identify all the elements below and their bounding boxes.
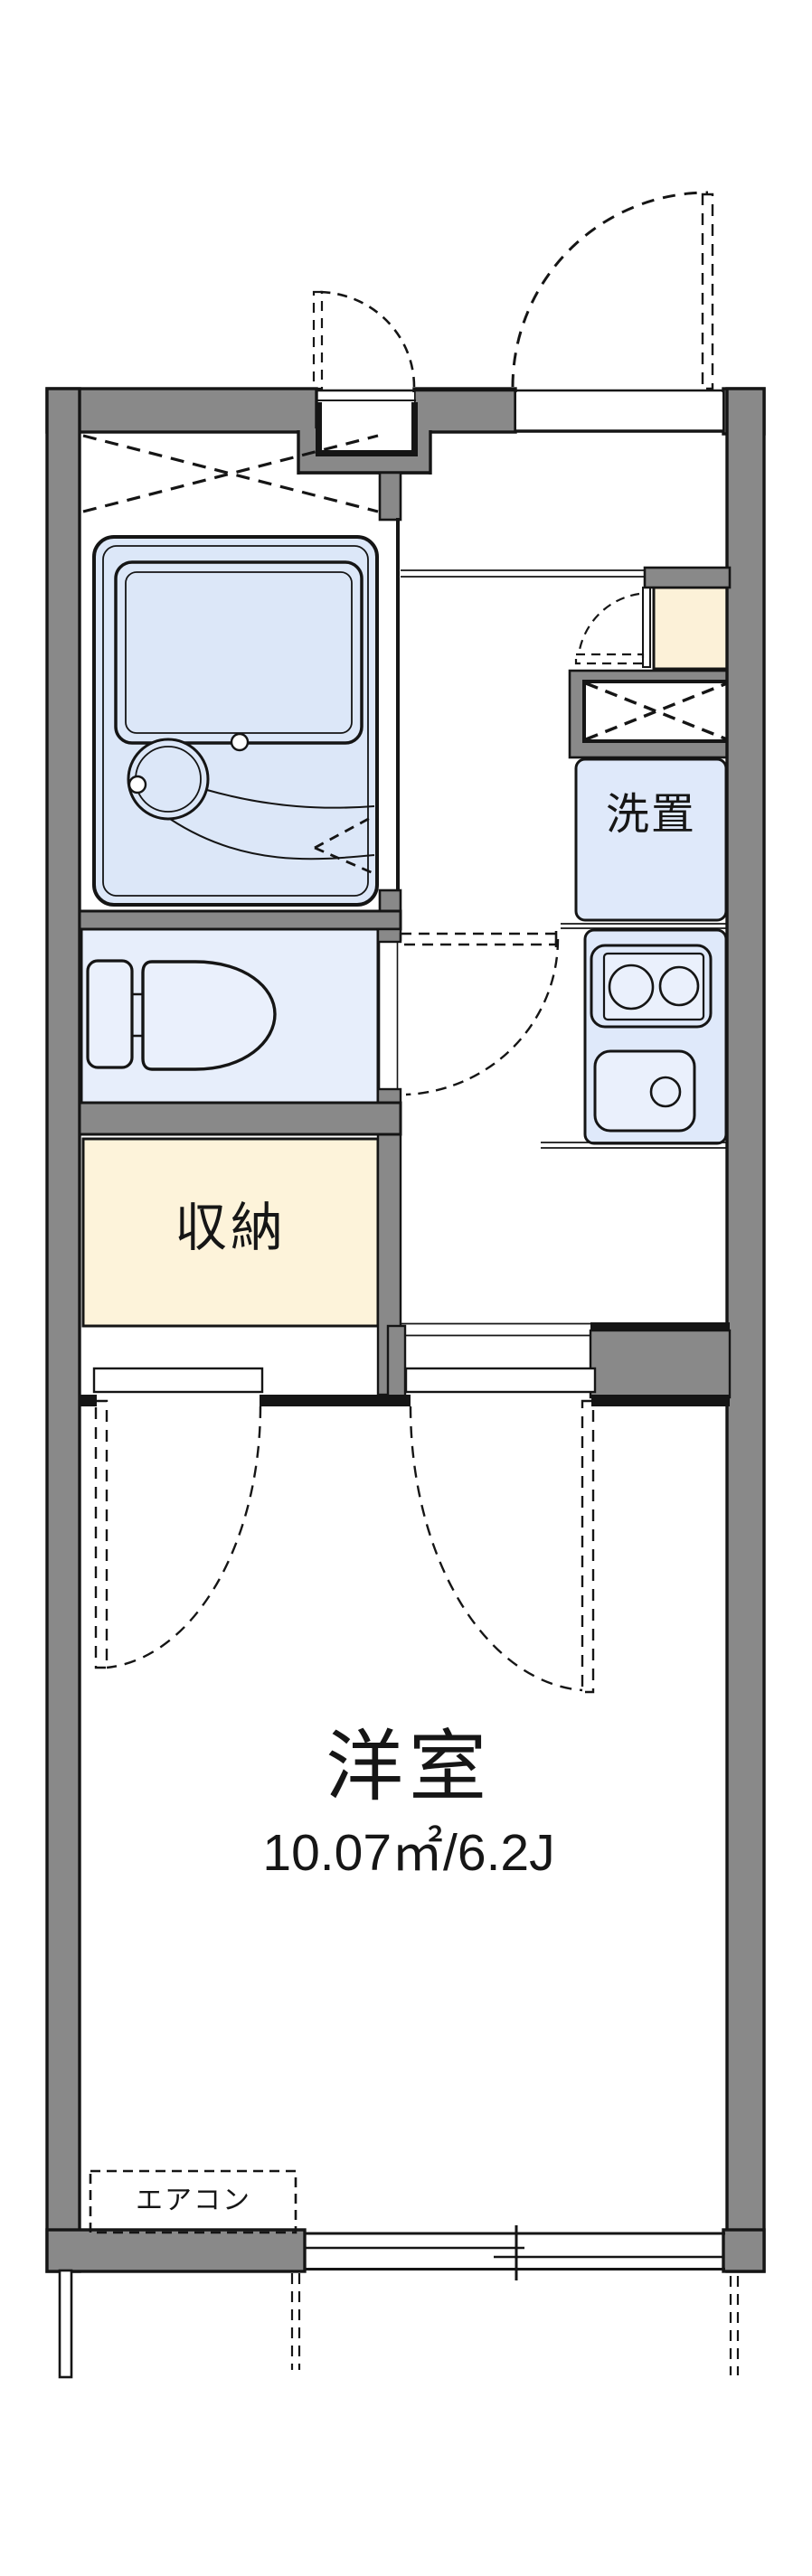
kitchen-unit bbox=[541, 924, 727, 1148]
genkan-top-bar bbox=[645, 568, 730, 588]
washer-space-box bbox=[576, 759, 726, 920]
cabinet-box bbox=[654, 588, 728, 669]
wall-room-top-a bbox=[80, 1395, 97, 1406]
aircon-label: エアコン bbox=[136, 2187, 251, 2214]
floor-plan: 洗置 収納 洋室 10.07㎡/6.2J エアコン bbox=[0, 0, 812, 2576]
water-heater-cabinet bbox=[643, 588, 728, 669]
balcony-dash-right bbox=[731, 2276, 738, 2375]
hall-door-leaf-open bbox=[582, 1401, 593, 1692]
cabinet-door-open bbox=[576, 654, 643, 663]
wall-right bbox=[727, 389, 764, 2271]
cabinet-door-leaf bbox=[643, 588, 650, 667]
bathtub-drain bbox=[231, 734, 248, 750]
closet-door-panel bbox=[94, 1368, 262, 1392]
meter-door-arc bbox=[317, 292, 414, 387]
meter-niche-jamb-left bbox=[316, 402, 322, 456]
meter-niche-jamb-right bbox=[411, 402, 418, 456]
wall-bottom-right bbox=[723, 2230, 764, 2271]
storage-label: 収納 bbox=[175, 1202, 287, 1255]
toilet-tank bbox=[88, 961, 132, 1067]
toilet-doorway-jambs bbox=[380, 942, 398, 1089]
bathtub bbox=[116, 562, 362, 743]
counter-edge-bottom bbox=[541, 1142, 727, 1148]
balcony-dash-mid bbox=[292, 2273, 299, 2370]
wall-left bbox=[47, 389, 80, 2271]
wall-room-top-b bbox=[260, 1395, 411, 1406]
washer-space-label: 洗置 bbox=[606, 794, 696, 837]
overhead-cabinet bbox=[570, 671, 730, 757]
sink-drain bbox=[651, 1077, 680, 1106]
room-label: 洋室 bbox=[326, 1728, 492, 1806]
washer-space bbox=[576, 759, 726, 920]
balcony-post-left bbox=[60, 2270, 71, 2377]
hall-threshold-lines bbox=[401, 1324, 590, 1336]
wall-room-top-c bbox=[591, 1395, 730, 1406]
wall-toilet-right-top bbox=[378, 929, 401, 942]
entrance-door-leaf bbox=[703, 194, 713, 389]
stove-burner-right bbox=[660, 967, 698, 1005]
wall-kitchen-front bbox=[590, 1330, 730, 1397]
window-south bbox=[305, 2225, 725, 2280]
cabinet-door-arc bbox=[579, 594, 639, 654]
genkan-step-lines bbox=[401, 570, 645, 577]
closet-door-arc bbox=[107, 1406, 260, 1668]
wall-bath-toilet bbox=[80, 911, 401, 929]
wall-hall-pillar bbox=[380, 473, 401, 520]
toilet-door-leaf bbox=[401, 934, 556, 945]
hall-door-arc bbox=[411, 1406, 582, 1690]
entrance-opening bbox=[516, 392, 722, 430]
bathroom bbox=[94, 537, 377, 905]
room-size-label: 10.07㎡/6.2J bbox=[262, 1828, 554, 1879]
floor-plan-drawing bbox=[0, 0, 812, 2576]
counter-edge-top bbox=[561, 924, 727, 928]
closet-door-leaf-open bbox=[96, 1401, 107, 1668]
toilet-room bbox=[81, 929, 378, 1103]
entrance-door-arc bbox=[513, 193, 708, 387]
meter-niche-sill bbox=[316, 450, 418, 456]
wall-room-pillar bbox=[388, 1326, 405, 1398]
wall-top-left bbox=[47, 389, 316, 432]
wall-top-mid bbox=[414, 389, 515, 432]
hall-door-panel bbox=[406, 1368, 595, 1392]
wall-toilet-storage bbox=[80, 1103, 401, 1134]
bath-faucet bbox=[129, 776, 146, 793]
wall-bottom-left bbox=[47, 2230, 305, 2271]
stove-burner-left bbox=[609, 965, 653, 1009]
toilet-door-arc bbox=[406, 939, 558, 1095]
meter-door-leaf bbox=[314, 292, 322, 389]
